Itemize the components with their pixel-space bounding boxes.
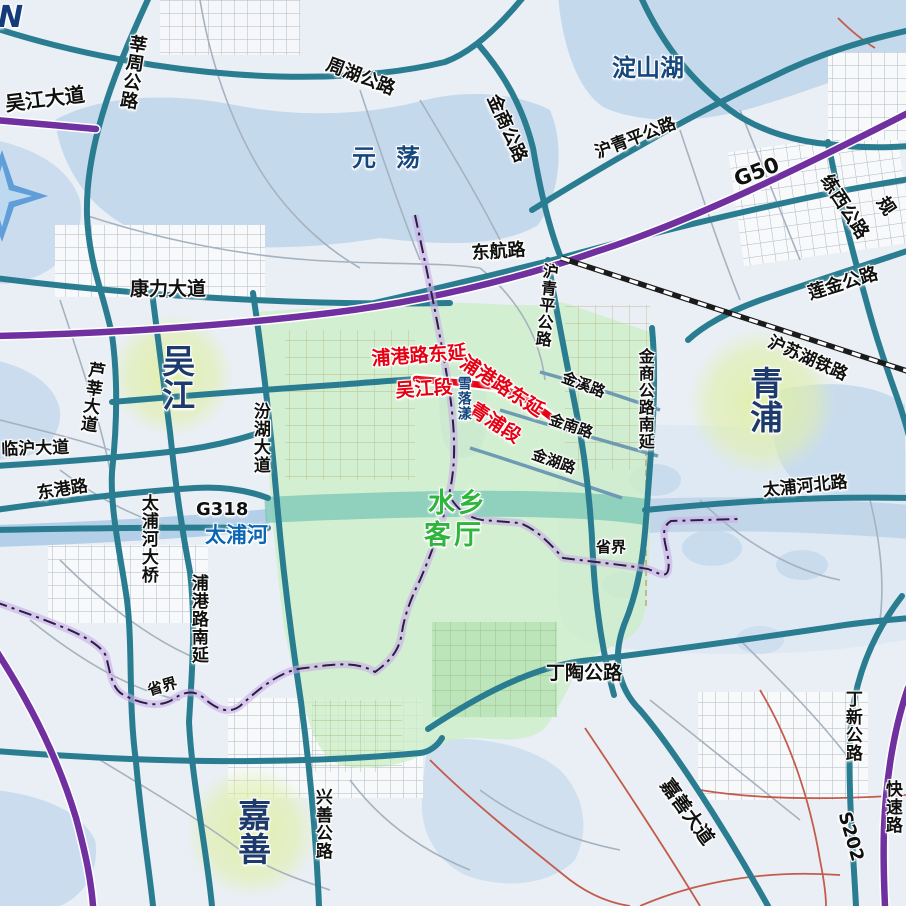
lake-yuandang — [55, 94, 559, 247]
road-label-dingxin: 丁新公路 — [842, 690, 860, 762]
water-label-yuandang: 元荡 — [352, 146, 440, 171]
road-label-donghang: 东航路 — [471, 241, 526, 264]
road-label-kuaisulu-partial: 快速路 — [882, 780, 900, 834]
zone-label-line2: 客厅 — [424, 522, 484, 550]
water-label-xueluoyang: 雪落漾 — [456, 376, 471, 421]
water-label-dianshanhu: 淀山湖 — [612, 56, 684, 81]
road-label-taipuhe-daqiao: 太浦河大桥 — [138, 494, 156, 584]
road-label-pugang-nanyan: 浦港路南延 — [188, 574, 206, 664]
place-label-wujiang: 吴江 — [158, 344, 193, 412]
road-label-xingshan: 兴善公路 — [312, 788, 330, 860]
water-label-taipuhe: 太浦河 — [205, 524, 268, 546]
road-label-jinshang-nanyan: 金商公路南延 — [636, 348, 653, 450]
road-label-dingtao: 丁陶公路 — [546, 664, 622, 684]
boundary-label-right: 省界 — [596, 540, 626, 556]
road-label-fenhu: 汾湖大道 — [250, 402, 268, 474]
map-artwork — [0, 0, 906, 906]
planning-map-canvas[interactable]: N 吴江大道 莘周公路 周湖公路 金商公路 沪青平公路 G50 东航路 康力大道… — [0, 0, 906, 906]
zone-label-line1: 水乡 — [428, 490, 488, 518]
compass-north-label: N — [0, 2, 23, 34]
place-label-qingpu: 青浦 — [746, 366, 781, 434]
highlight-label-wujiang-section: 吴江段 — [395, 378, 453, 402]
road-label-kangli: 康力大道 — [130, 280, 206, 300]
place-label-jiashan: 嘉善 — [234, 798, 269, 866]
road-label-linhu: 临沪大道 — [1, 440, 70, 460]
road-label-g318: G318 — [196, 501, 248, 520]
